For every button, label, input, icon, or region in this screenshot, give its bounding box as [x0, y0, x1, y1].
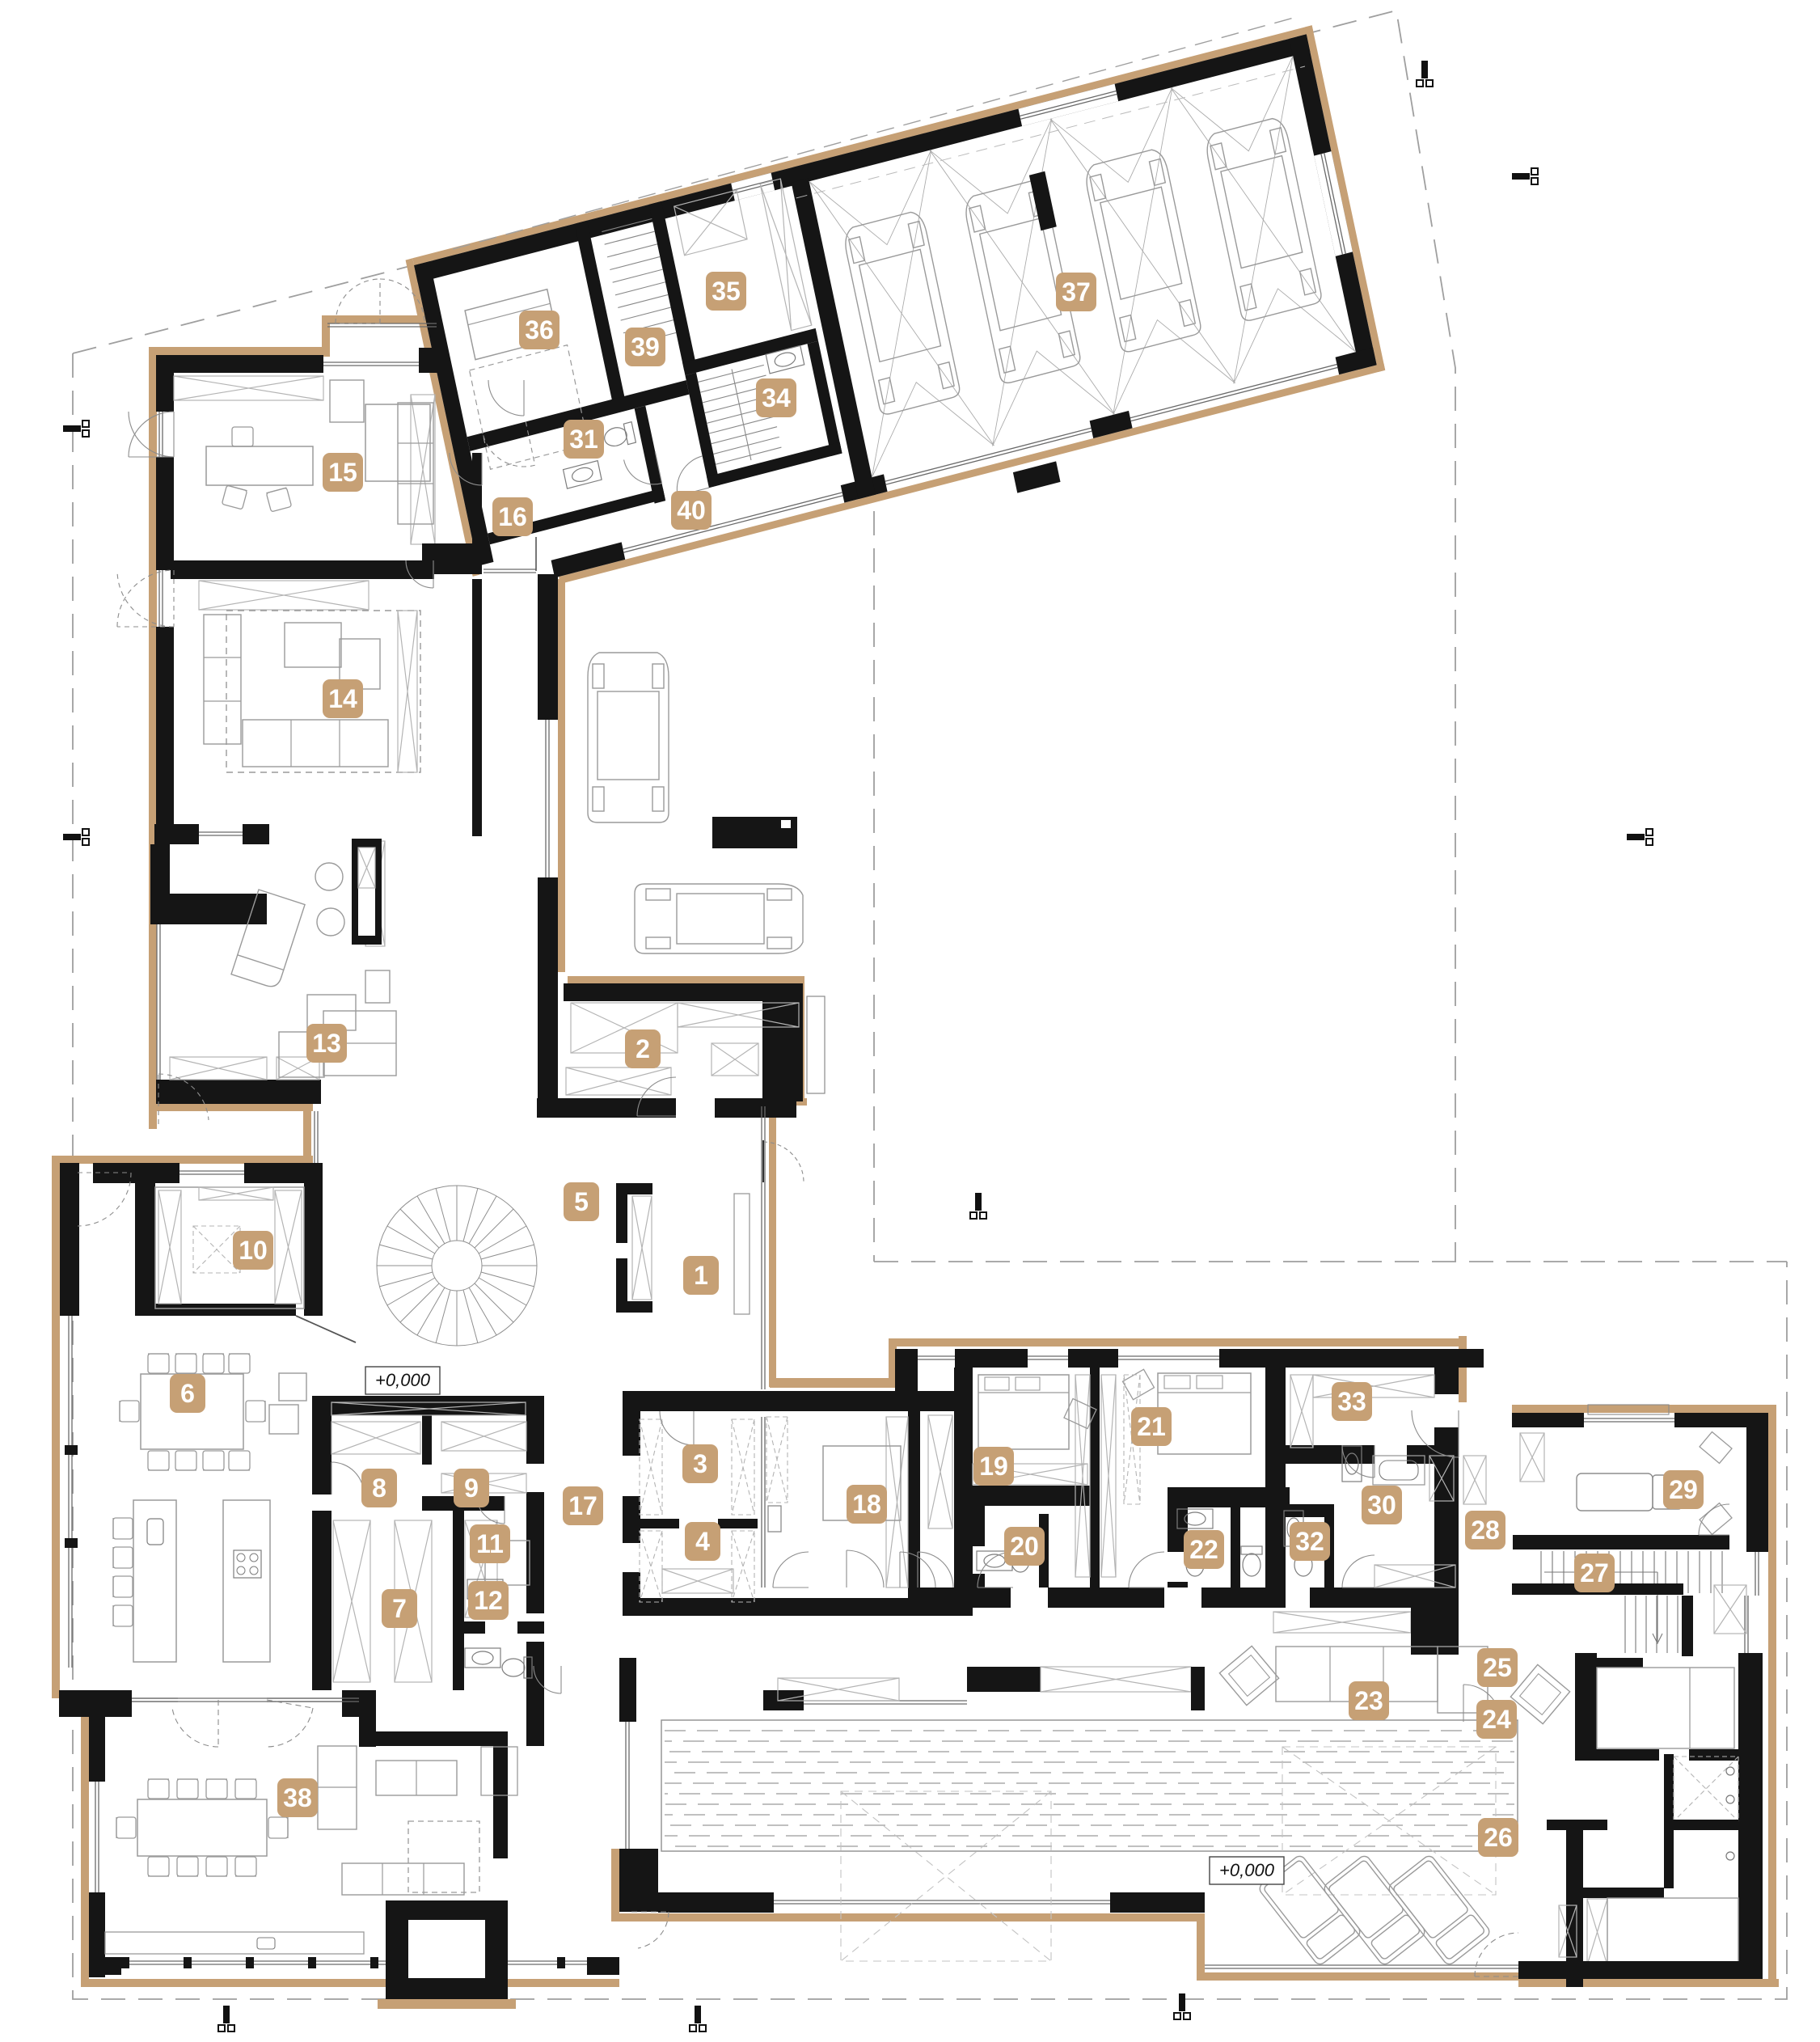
svg-text:+0,000: +0,000: [375, 1370, 431, 1390]
svg-text:26: 26: [1484, 1823, 1513, 1852]
svg-text:4: 4: [695, 1527, 710, 1556]
svg-text:33: 33: [1337, 1387, 1366, 1416]
svg-text:16: 16: [498, 502, 527, 531]
svg-text:24: 24: [1482, 1705, 1511, 1734]
svg-text:36: 36: [525, 315, 554, 345]
svg-text:29: 29: [1669, 1475, 1698, 1504]
svg-text:22: 22: [1189, 1535, 1218, 1564]
svg-text:11: 11: [476, 1529, 504, 1558]
svg-text:25: 25: [1483, 1653, 1512, 1682]
svg-text:5: 5: [574, 1187, 589, 1216]
svg-text:17: 17: [568, 1491, 598, 1520]
svg-text:32: 32: [1295, 1527, 1324, 1556]
svg-text:34: 34: [762, 383, 791, 412]
svg-text:30: 30: [1367, 1490, 1396, 1520]
svg-text:2: 2: [636, 1034, 650, 1063]
svg-text:9: 9: [464, 1473, 479, 1503]
svg-text:12: 12: [474, 1586, 503, 1615]
svg-text:20: 20: [1010, 1532, 1039, 1561]
svg-text:10: 10: [239, 1236, 268, 1265]
svg-text:35: 35: [712, 277, 741, 306]
svg-text:19: 19: [979, 1452, 1008, 1481]
svg-text:23: 23: [1354, 1686, 1383, 1715]
svg-text:6: 6: [180, 1379, 195, 1408]
svg-text:7: 7: [392, 1594, 407, 1623]
svg-text:18: 18: [852, 1490, 881, 1519]
svg-text:28: 28: [1471, 1516, 1500, 1545]
svg-text:39: 39: [631, 332, 660, 361]
svg-text:31: 31: [569, 425, 598, 454]
svg-text:37: 37: [1062, 277, 1091, 307]
svg-text:3: 3: [693, 1449, 707, 1478]
svg-text:14: 14: [328, 684, 357, 713]
svg-text:40: 40: [677, 496, 706, 525]
svg-text:8: 8: [372, 1473, 386, 1503]
svg-text:1: 1: [694, 1261, 708, 1290]
svg-text:15: 15: [328, 458, 357, 487]
svg-text:38: 38: [283, 1783, 312, 1812]
svg-text:27: 27: [1580, 1558, 1609, 1588]
svg-text:21: 21: [1137, 1412, 1166, 1441]
svg-text:+0,000: +0,000: [1219, 1860, 1275, 1880]
svg-text:13: 13: [312, 1029, 341, 1058]
